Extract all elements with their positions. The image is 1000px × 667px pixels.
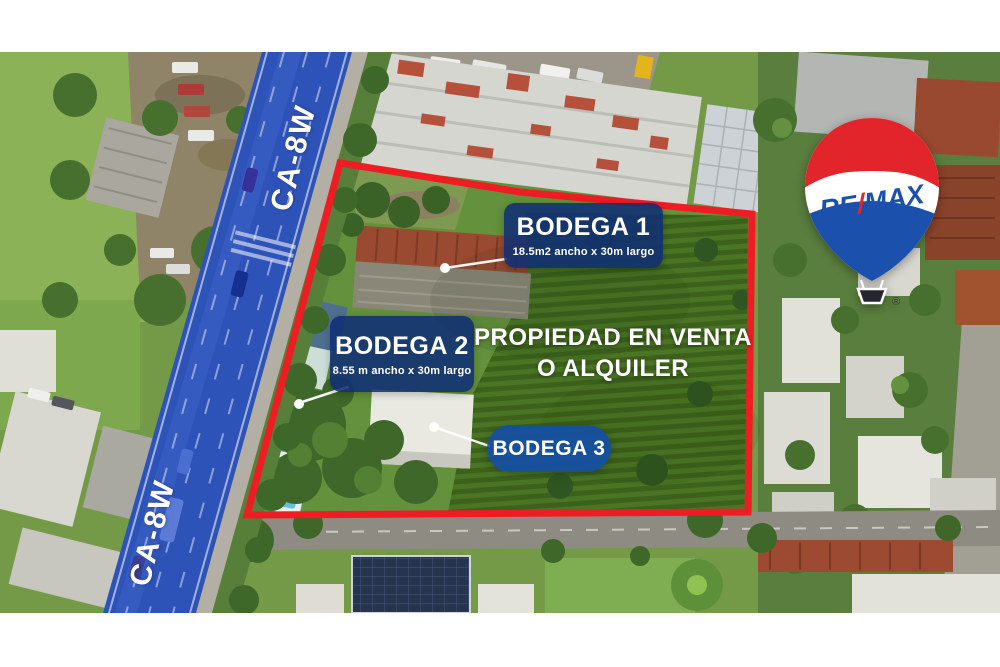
bodega-2-dimensions: 8.55 m ancho x 30m largo — [333, 365, 472, 377]
registered-trademark: ® — [892, 296, 900, 307]
balloon-basket — [858, 289, 886, 303]
bodega-2-title: BODEGA 2 — [335, 332, 469, 361]
remax-balloon-logo: RE/MAX ® — [797, 115, 947, 307]
label-bodega-1: BODEGA 1 18.5m2 ancho x 30m largo — [504, 203, 663, 268]
bodega-3-title: BODEGA 3 — [493, 437, 606, 461]
listing-image: CA-8W CA-8W BODEGA 1 18.5m2 ancho x 30m … — [0, 0, 1000, 667]
letterbox-top — [0, 0, 1000, 52]
label-bodega-2: BODEGA 2 8.55 m ancho x 30m largo — [330, 316, 474, 392]
headline-line-1: PROPIEDAD EN VENTA — [468, 322, 758, 353]
bodega-1-title: BODEGA 1 — [517, 213, 651, 242]
letterbox-bottom — [0, 613, 1000, 667]
headline-line-2: O ALQUILER — [468, 353, 758, 384]
property-headline: PROPIEDAD EN VENTA O ALQUILER — [468, 322, 758, 384]
balloon-basket-cables — [861, 280, 883, 289]
bodega-1-dimensions: 18.5m2 ancho x 30m largo — [513, 246, 655, 258]
label-bodega-3: BODEGA 3 — [487, 425, 611, 472]
